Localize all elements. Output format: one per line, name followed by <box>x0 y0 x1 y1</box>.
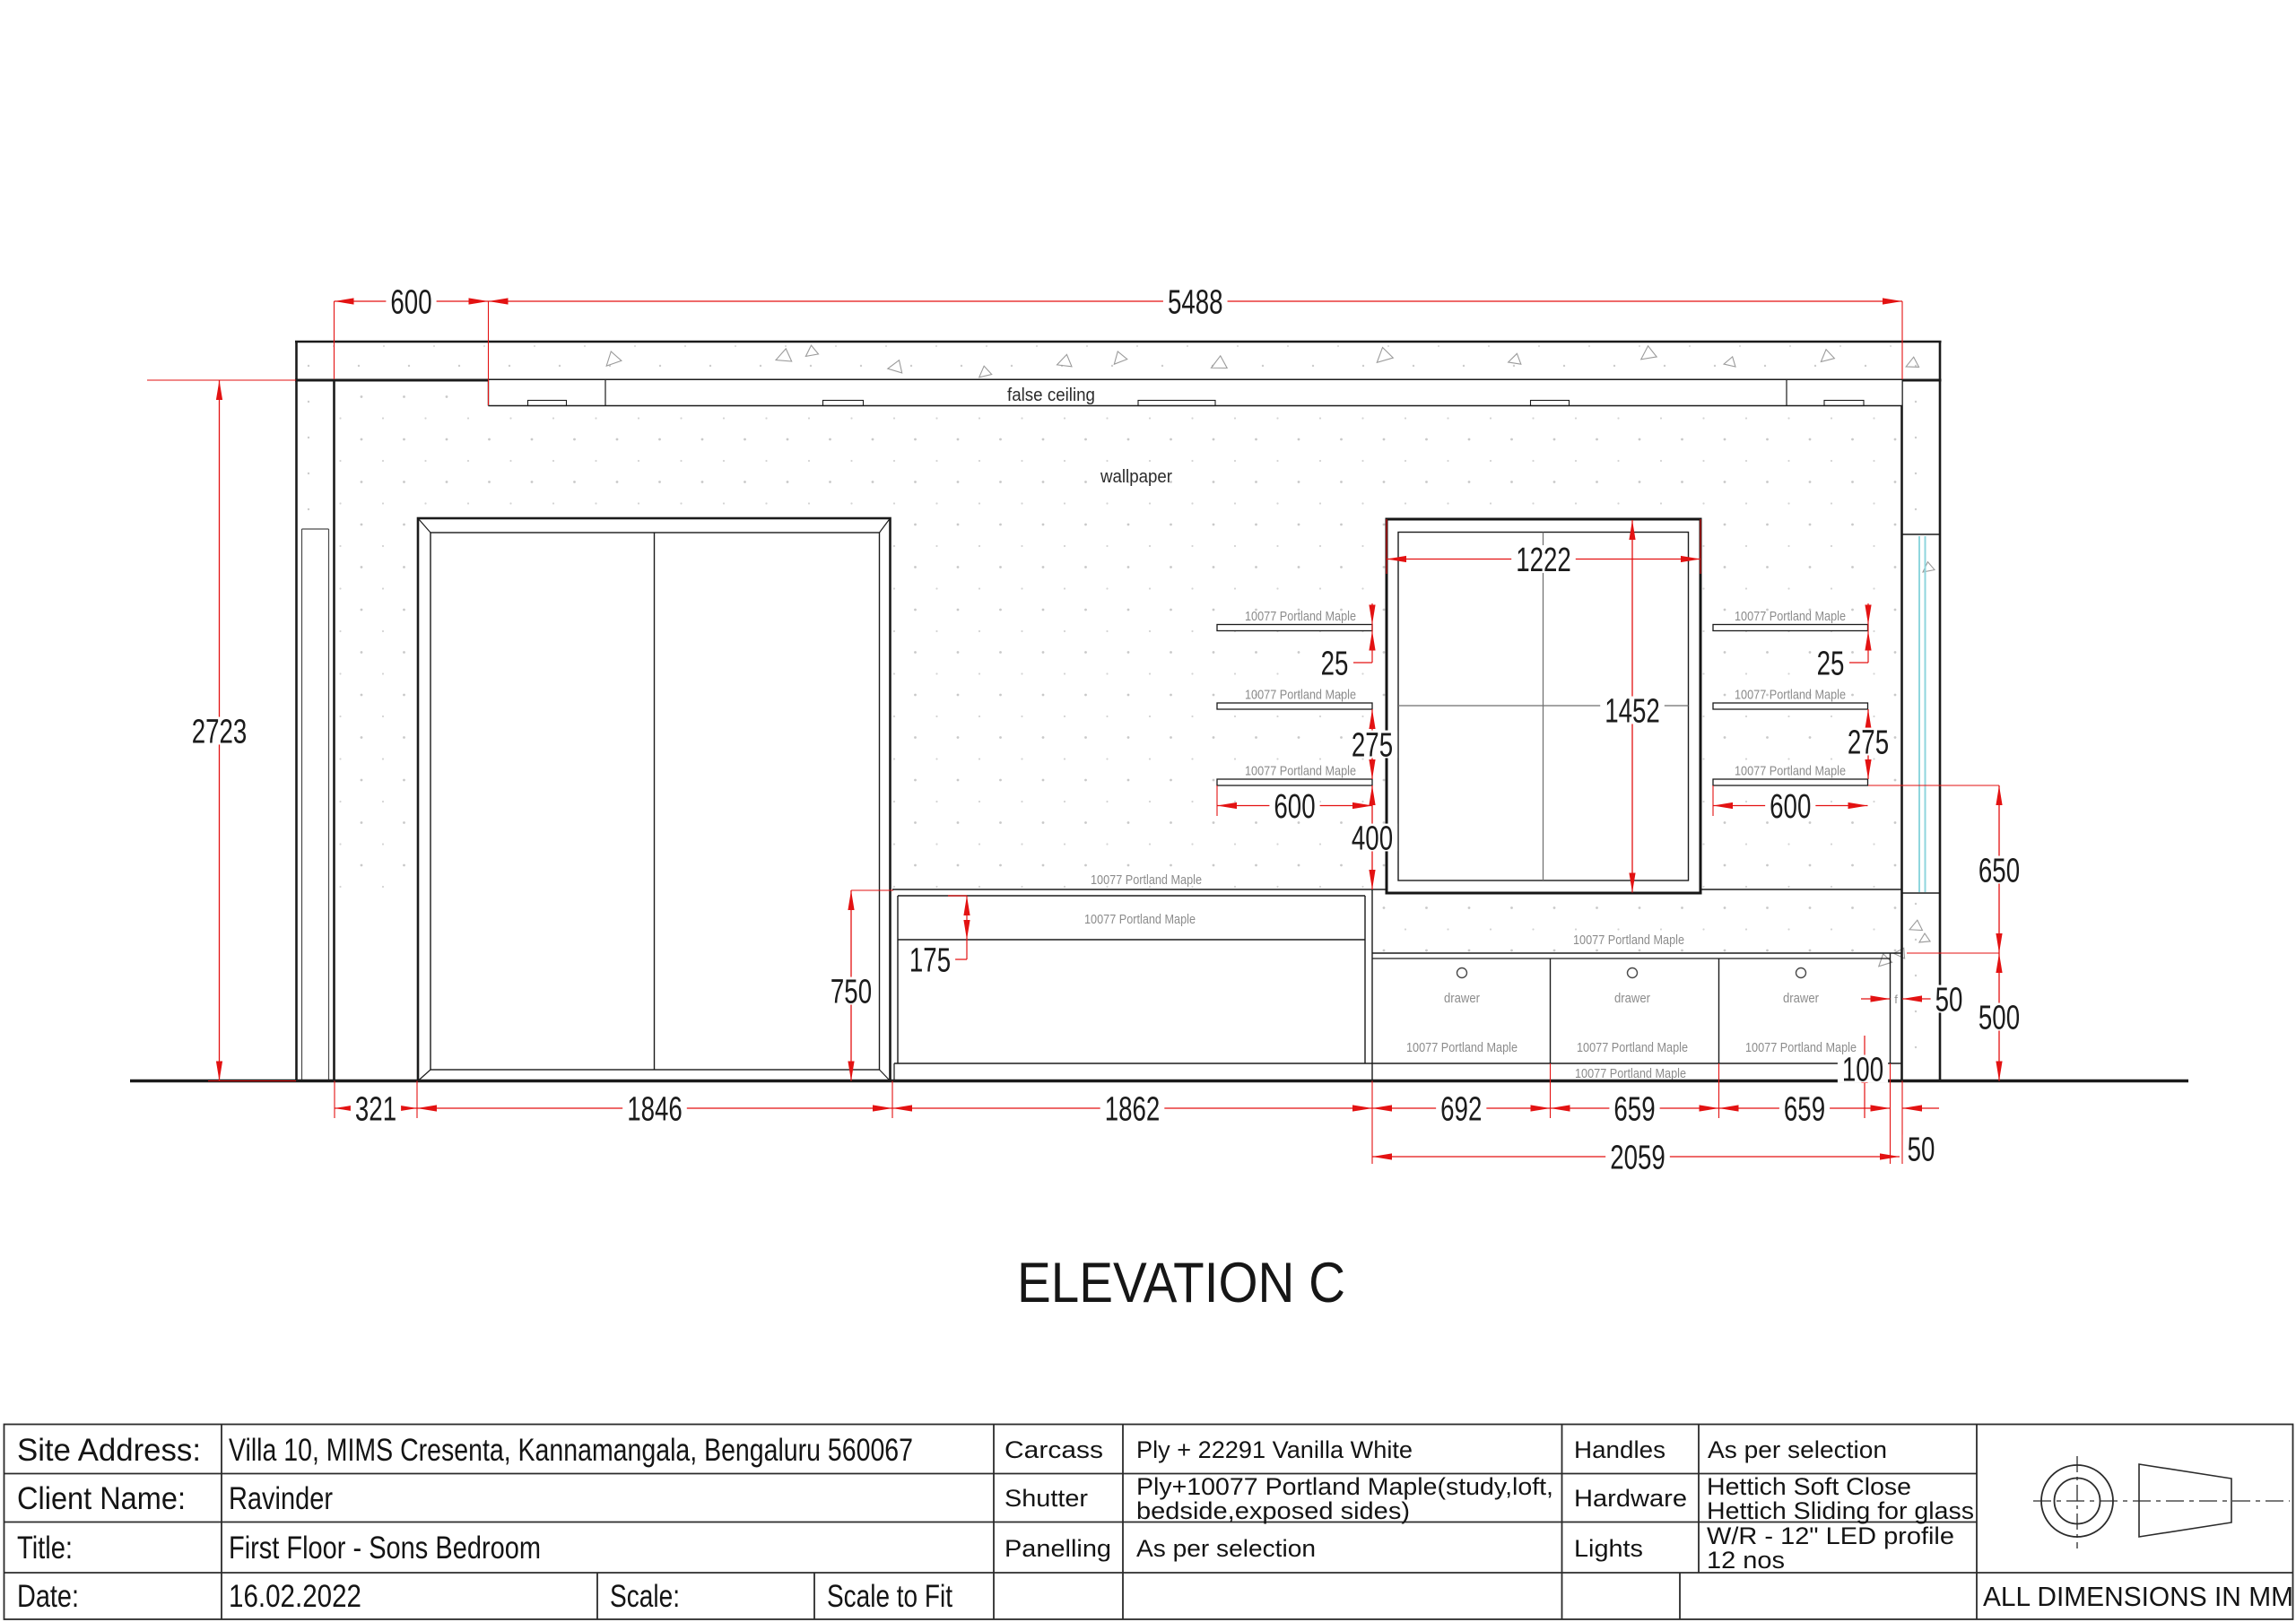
svg-text:10077 Portland Maple: 10077 Portland Maple <box>1745 1040 1857 1055</box>
svg-text:600: 600 <box>390 283 431 321</box>
svg-text:drawer: drawer <box>1444 991 1480 1006</box>
svg-text:2723: 2723 <box>192 713 248 750</box>
svg-text:Ravinder: Ravinder <box>229 1481 333 1516</box>
svg-text:50: 50 <box>1935 981 1963 1019</box>
svg-text:12 nos: 12 nos <box>1707 1547 1785 1574</box>
svg-text:659: 659 <box>1784 1090 1825 1128</box>
svg-text:drawer: drawer <box>1783 991 1819 1006</box>
svg-text:10077 Portland Maple: 10077 Portland Maple <box>1084 912 1196 927</box>
svg-text:10077 Portland Maple: 10077 Portland Maple <box>1735 764 1846 779</box>
svg-text:Title:: Title: <box>17 1531 73 1566</box>
svg-text:400: 400 <box>1352 820 1393 857</box>
svg-text:drawer: drawer <box>1614 991 1650 1006</box>
svg-text:16.02.2022: 16.02.2022 <box>229 1579 361 1614</box>
svg-text:Client Name:: Client Name: <box>17 1481 186 1516</box>
svg-text:Site Address:: Site Address: <box>17 1433 201 1468</box>
svg-text:Hardware: Hardware <box>1574 1485 1687 1512</box>
svg-text:692: 692 <box>1440 1090 1482 1128</box>
svg-text:50: 50 <box>1908 1131 1935 1168</box>
svg-text:10077 Portland Maple: 10077 Portland Maple <box>1091 872 1202 888</box>
svg-text:Handles: Handles <box>1574 1436 1665 1463</box>
svg-text:600: 600 <box>1770 788 1811 826</box>
svg-text:W/R - 12" LED profile: W/R - 12" LED profile <box>1707 1522 1954 1549</box>
svg-text:wallpaper: wallpaper <box>1100 467 1172 487</box>
svg-text:Panelling: Panelling <box>1004 1535 1111 1562</box>
svg-text:10077 Portland Maple: 10077 Portland Maple <box>1573 932 1684 948</box>
svg-text:275: 275 <box>1848 724 1889 761</box>
svg-text:321: 321 <box>355 1090 396 1128</box>
svg-text:As per selection: As per selection <box>1708 1436 1887 1463</box>
svg-text:Scale:: Scale: <box>610 1579 680 1614</box>
svg-text:false ceiling: false ceiling <box>1007 386 1095 405</box>
svg-text:First Floor - Sons Bedroom: First Floor - Sons Bedroom <box>229 1531 541 1566</box>
svg-text:275: 275 <box>1352 726 1393 764</box>
svg-text:Carcass: Carcass <box>1004 1436 1103 1463</box>
svg-text:2059: 2059 <box>1610 1139 1665 1176</box>
svg-text:Date:: Date: <box>17 1579 79 1614</box>
svg-text:100: 100 <box>1842 1051 1883 1089</box>
svg-text:25: 25 <box>1817 645 1845 682</box>
svg-text:As per selection: As per selection <box>1136 1535 1316 1562</box>
svg-text:750: 750 <box>831 973 872 1010</box>
svg-text:650: 650 <box>1979 852 2020 889</box>
svg-text:10077 Portland Maple: 10077 Portland Maple <box>1575 1066 1686 1081</box>
svg-text:600: 600 <box>1274 788 1315 826</box>
svg-text:1222: 1222 <box>1516 542 1571 579</box>
svg-text:f: f <box>1894 993 1898 1006</box>
svg-text:Ply+10077 Portland Maple(study: Ply+10077 Portland Maple(study,loft, <box>1136 1473 1553 1500</box>
svg-text:Lights: Lights <box>1574 1535 1643 1562</box>
svg-text:10077 Portland Maple: 10077 Portland Maple <box>1577 1040 1688 1055</box>
svg-text:Villa 10, MIMS Cresenta, Kanna: Villa 10, MIMS Cresenta, Kannamangala, B… <box>229 1433 913 1468</box>
svg-text:10077 Portland Maple: 10077 Portland Maple <box>1406 1040 1518 1055</box>
svg-text:ELEVATION C: ELEVATION C <box>1017 1252 1345 1314</box>
svg-text:1846: 1846 <box>627 1090 683 1128</box>
svg-text:10077 Portland Maple: 10077 Portland Maple <box>1735 688 1846 703</box>
svg-text:25: 25 <box>1321 645 1349 682</box>
svg-text:Hettich Soft Close: Hettich Soft Close <box>1707 1473 1911 1500</box>
svg-text:10077 Portland Maple: 10077 Portland Maple <box>1245 688 1356 703</box>
svg-text:1452: 1452 <box>1605 692 1660 730</box>
svg-text:ALL DIMENSIONS IN MM: ALL DIMENSIONS IN MM <box>1983 1582 2293 1612</box>
svg-text:10077 Portland Maple: 10077 Portland Maple <box>1735 609 1846 624</box>
svg-text:10077 Portland Maple: 10077 Portland Maple <box>1245 764 1356 779</box>
svg-text:5488: 5488 <box>1168 283 1223 321</box>
svg-text:bedside,exposed sides): bedside,exposed sides) <box>1136 1497 1410 1524</box>
svg-text:10077 Portland Maple: 10077 Portland Maple <box>1245 609 1356 624</box>
svg-text:Shutter: Shutter <box>1004 1485 1088 1512</box>
svg-text:Ply + 22291 Vanilla White: Ply + 22291 Vanilla White <box>1136 1436 1413 1463</box>
svg-text:Scale to Fit: Scale to Fit <box>827 1579 952 1614</box>
svg-text:175: 175 <box>909 941 951 979</box>
svg-text:500: 500 <box>1979 999 2020 1037</box>
svg-text:Hettich Sliding for glass: Hettich Sliding for glass <box>1707 1497 1974 1524</box>
svg-text:1862: 1862 <box>1105 1090 1161 1128</box>
svg-text:659: 659 <box>1613 1090 1655 1128</box>
